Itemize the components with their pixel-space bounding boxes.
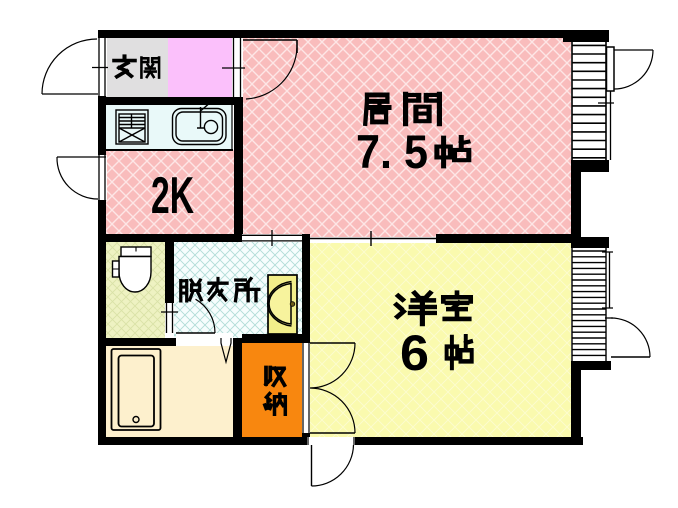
- svg-text:7. 5: 7. 5: [356, 125, 428, 178]
- svg-text:2K: 2K: [151, 167, 194, 225]
- svg-text:6: 6: [400, 325, 429, 381]
